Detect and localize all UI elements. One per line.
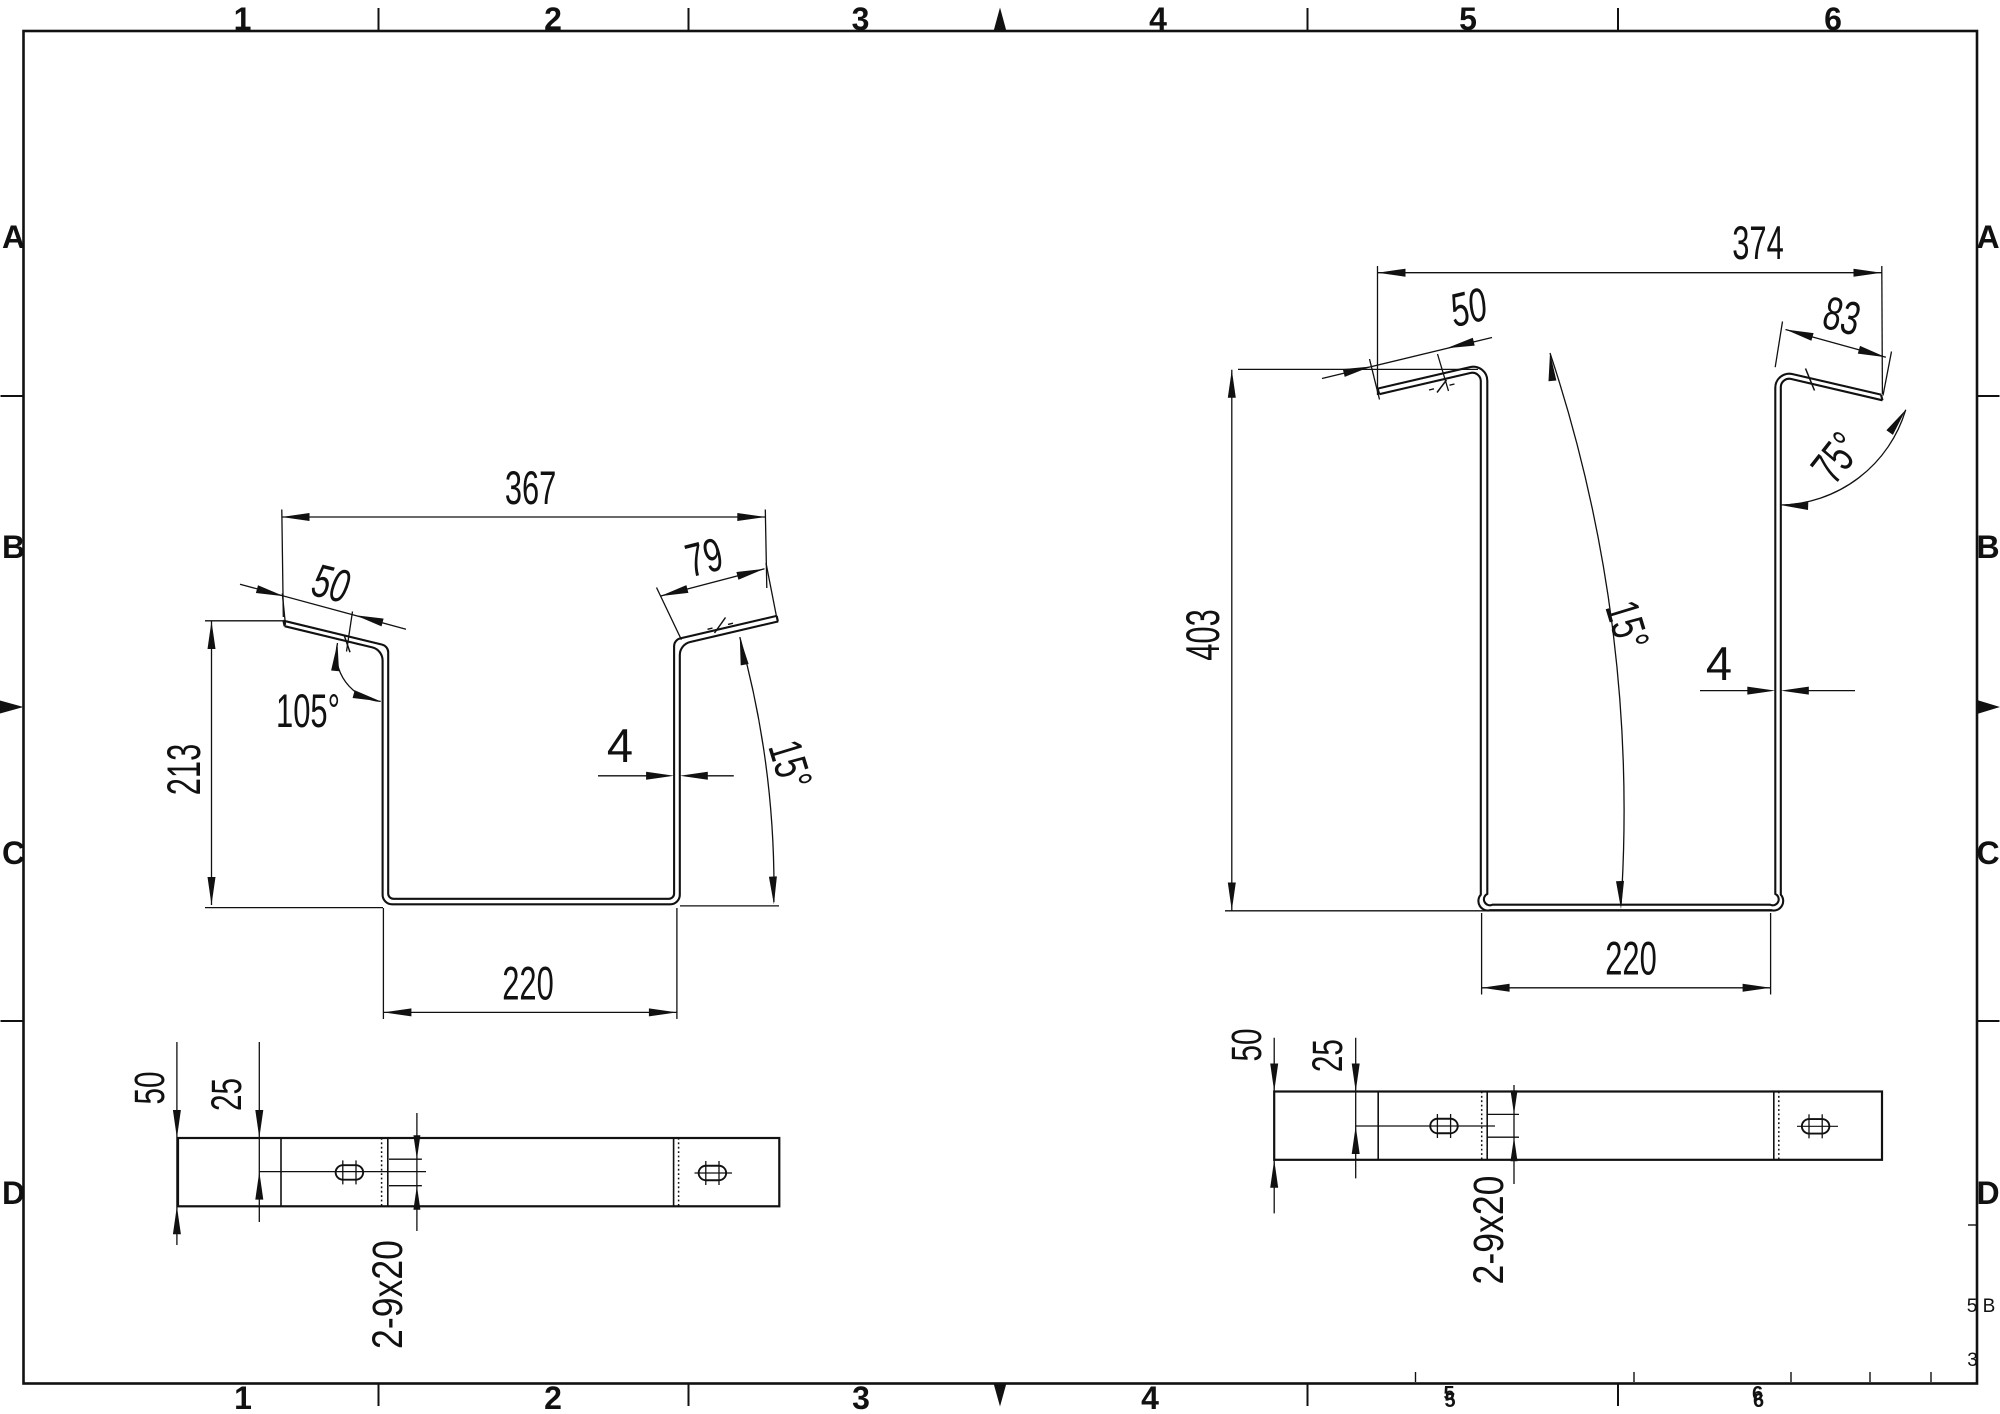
svg-text:4: 4 [1149, 1, 1167, 37]
svg-text:B: B [1976, 529, 1999, 565]
svg-text:15°: 15° [1595, 594, 1660, 655]
svg-text:25: 25 [203, 1078, 251, 1111]
svg-text:4: 4 [607, 719, 633, 772]
svg-text:3: 3 [852, 1, 870, 37]
svg-text:83: 83 [1818, 285, 1866, 345]
svg-text:2: 2 [544, 1380, 562, 1414]
svg-text:374: 374 [1732, 216, 1784, 269]
svg-text:50: 50 [126, 1072, 174, 1105]
svg-text:B: B [2, 529, 25, 565]
svg-text:5: 5 [1459, 1, 1477, 37]
svg-text:D: D [2, 1175, 25, 1211]
svg-text:B: B [1983, 1296, 1996, 1317]
svg-text:50: 50 [1223, 1029, 1271, 1062]
svg-text:2-9x20: 2-9x20 [1465, 1176, 1513, 1285]
svg-text:3: 3 [1967, 1350, 1978, 1371]
svg-text:4: 4 [1706, 637, 1732, 690]
svg-text:2: 2 [544, 1, 562, 37]
svg-text:213: 213 [157, 744, 210, 796]
svg-text:220: 220 [502, 957, 554, 1010]
svg-text:6: 6 [1824, 1, 1842, 37]
svg-text:79: 79 [680, 527, 728, 587]
svg-text:105°: 105° [276, 684, 340, 737]
svg-text:6: 6 [1753, 1390, 1764, 1412]
svg-text:A: A [1976, 219, 1999, 255]
svg-text:2-9x20: 2-9x20 [364, 1240, 412, 1349]
svg-text:3: 3 [852, 1380, 870, 1414]
svg-text:A: A [2, 219, 25, 255]
svg-text:220: 220 [1605, 932, 1657, 985]
svg-text:25: 25 [1304, 1039, 1352, 1072]
svg-text:403: 403 [1176, 609, 1229, 661]
svg-text:1: 1 [234, 1380, 252, 1414]
svg-text:D: D [1976, 1175, 1999, 1211]
svg-text:C: C [1976, 835, 1999, 871]
svg-text:50: 50 [1444, 277, 1491, 337]
svg-text:5: 5 [1444, 1390, 1455, 1412]
svg-text:C: C [2, 835, 25, 871]
svg-text:50: 50 [307, 553, 355, 613]
svg-text:4: 4 [1141, 1380, 1159, 1414]
svg-text:367: 367 [505, 461, 557, 514]
svg-text:75°: 75° [1800, 422, 1871, 492]
svg-text:5: 5 [1967, 1296, 1978, 1317]
svg-text:1: 1 [234, 1, 252, 37]
